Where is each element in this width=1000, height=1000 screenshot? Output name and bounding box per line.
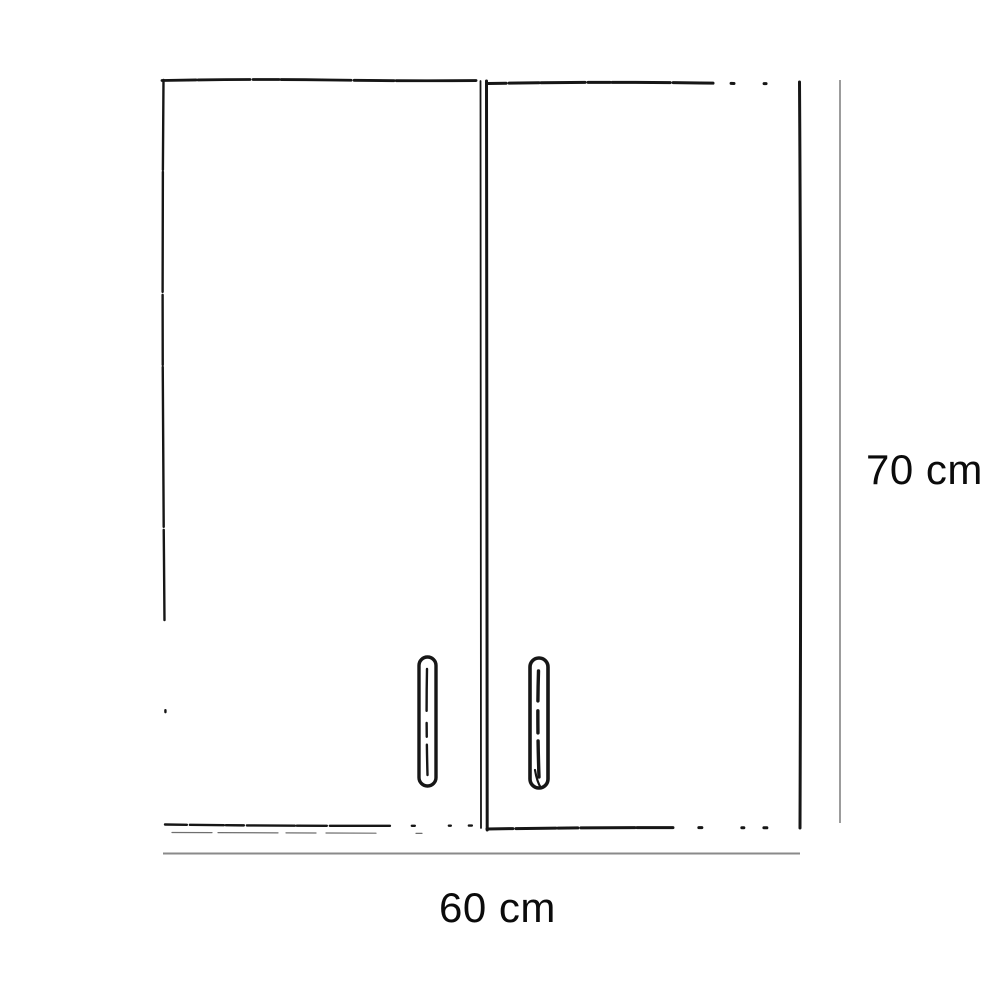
right-door-bottom-edge xyxy=(487,828,800,829)
right-handle-inner-detail xyxy=(538,671,539,777)
diagram-canvas: 70 cm 60 cm xyxy=(0,0,1000,1000)
left-door-left-edge xyxy=(163,80,167,825)
right-door-left-edge xyxy=(487,81,488,830)
left-door-bottom-sketch-line xyxy=(172,833,462,834)
left-door-bottom-edge xyxy=(165,825,481,826)
cabinet-sketch xyxy=(162,80,801,834)
dimension-labels: 70 cm 60 cm xyxy=(439,446,983,931)
right-door-handle xyxy=(530,658,548,788)
right-door-right-edge xyxy=(800,82,801,828)
left-door-right-edge xyxy=(481,81,482,828)
left-door-handle xyxy=(419,657,436,786)
height-dimension-label: 70 cm xyxy=(866,446,983,493)
left-door xyxy=(162,80,481,834)
dimension-lines xyxy=(163,80,840,854)
cabinet-dimension-diagram: 70 cm 60 cm xyxy=(0,0,1000,1000)
width-dimension-label: 60 cm xyxy=(439,884,556,931)
right-door-top-edge xyxy=(488,82,799,83)
left-door-top-edge xyxy=(162,80,480,81)
right-door xyxy=(487,81,801,830)
